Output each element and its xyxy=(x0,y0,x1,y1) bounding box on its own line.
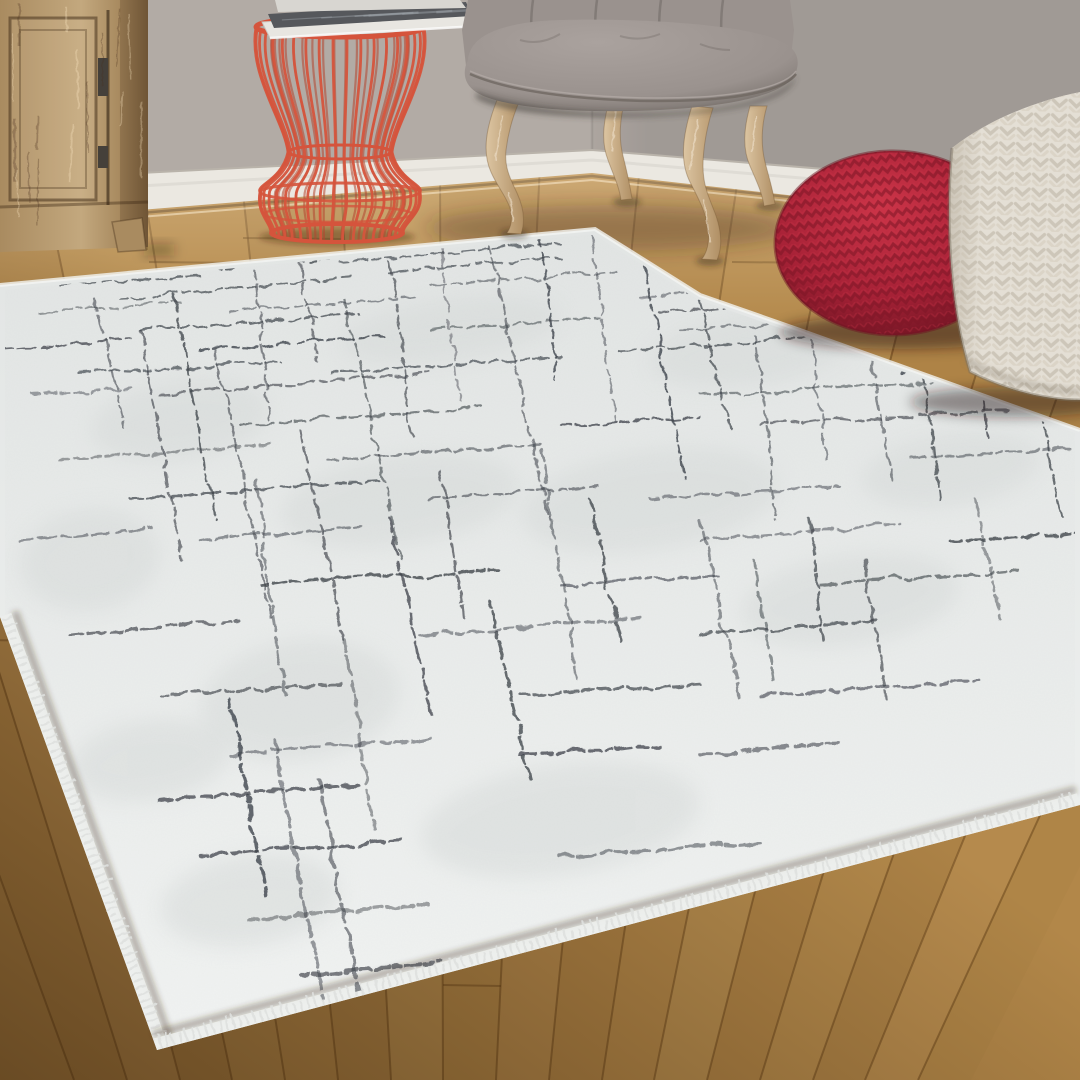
living-room-photo xyxy=(0,0,1080,1080)
wood-cabinet xyxy=(0,0,174,256)
cabinet-door xyxy=(10,18,96,200)
cabinet-hinge xyxy=(98,146,108,168)
scene-canvas xyxy=(0,0,1080,1080)
white-knit-pouf xyxy=(949,92,1080,400)
